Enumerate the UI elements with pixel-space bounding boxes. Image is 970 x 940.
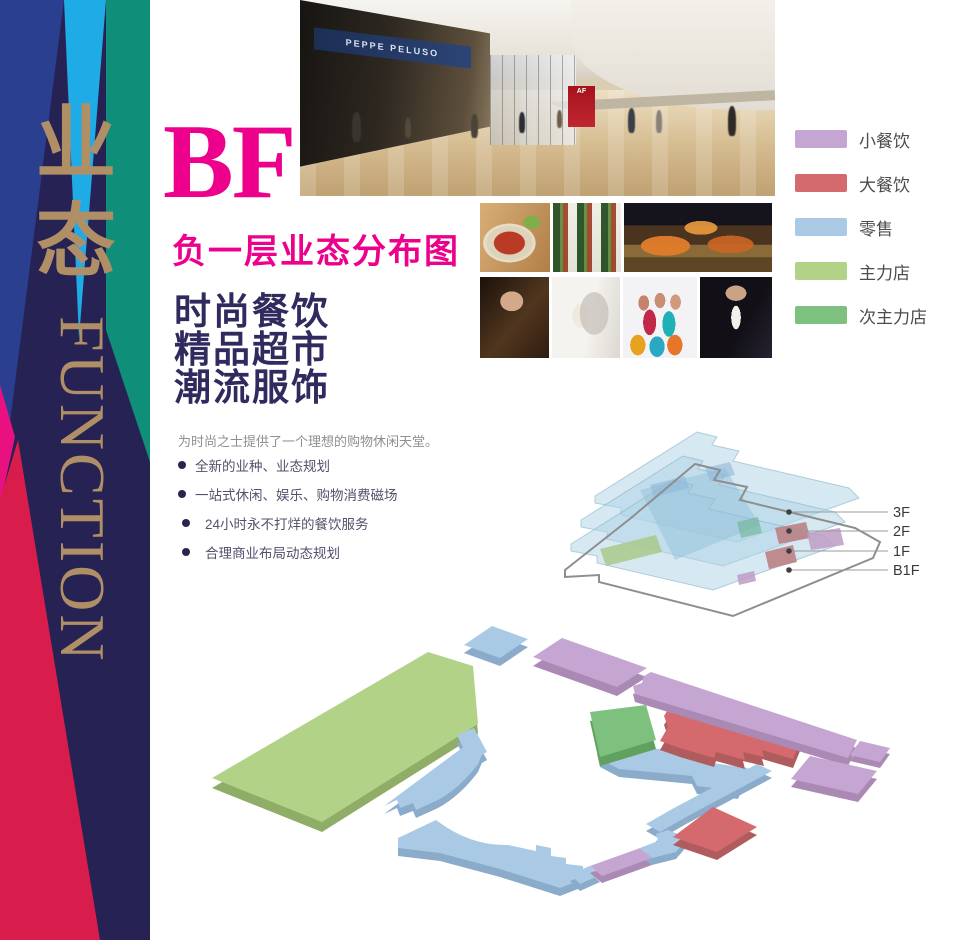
floor-code-title: BF [163, 112, 294, 212]
legend-swatch [795, 262, 847, 280]
headline-line-2: 精品超市 [174, 332, 330, 370]
legend-swatch [795, 218, 847, 236]
bullet-text: 全新的业种、业态规划 [195, 455, 330, 475]
floor-label-3f: 3F [893, 505, 910, 521]
floor-label-2f: 2F [893, 524, 910, 540]
person-silhouette [557, 110, 562, 128]
mall-interior-photo: PEPPE PELUSO AF [300, 0, 775, 196]
floor-label-1f: 1F [893, 544, 910, 560]
food-court-photo [624, 203, 772, 272]
legend-item: 小餐饮 [795, 130, 965, 148]
bullet-dot-icon [182, 519, 190, 527]
legend-item: 主力店 [795, 262, 965, 280]
person-silhouette [352, 112, 361, 142]
list-item: 24小时永不打烊的餐饮服务 [178, 513, 478, 533]
bullet-text: 24小时永不打烊的餐饮服务 [205, 513, 369, 533]
list-item: 合理商业布局动态规划 [178, 542, 478, 562]
person-silhouette [519, 112, 525, 133]
legend-label: 大餐饮 [859, 171, 910, 196]
bullet-dot-icon [178, 490, 186, 498]
legend-item: 次主力店 [795, 306, 965, 324]
photo-collage [480, 203, 772, 358]
brochure-page: 业态 FUNCTION BF 负一层业态分布图 时尚餐饮 精品超市 潮流服饰 为… [0, 0, 970, 940]
bullet-list: 全新的业种、业态规划 一站式休闲、娱乐、购物消费磁场 24小时永不打烊的餐饮服务… [178, 455, 478, 571]
person-silhouette [471, 114, 478, 138]
headline-block: 时尚餐饮 精品超市 潮流服饰 [174, 294, 330, 408]
bottles-photo [553, 203, 621, 272]
fur-portrait-photo [480, 277, 549, 358]
person-silhouette [405, 118, 411, 138]
legend-label: 小餐饮 [859, 127, 910, 152]
photo-glass-wall [490, 55, 576, 145]
person-silhouette [628, 108, 635, 133]
shoppers-photo [623, 277, 697, 358]
accent-storefront: AF [568, 86, 594, 127]
legend-swatch [795, 306, 847, 324]
bullet-dot-icon [182, 548, 190, 556]
banner-vertical-title-en: FUNCTION [45, 316, 119, 856]
banner-vertical-title-cn: 业态 [26, 96, 126, 292]
headline-line-1: 时尚餐饮 [174, 294, 330, 332]
bullet-dot-icon [178, 461, 186, 469]
legend-label: 主力店 [859, 259, 910, 284]
legend-swatch [795, 174, 847, 192]
suit-man-photo [700, 277, 772, 358]
page-title: 负一层业态分布图 [172, 224, 460, 273]
list-item: 全新的业种、业态规划 [178, 455, 478, 475]
legend-label: 零售 [859, 215, 893, 240]
legend-swatch [795, 130, 847, 148]
floor-label-b1f: B1F [893, 563, 920, 579]
list-item: 一站式休闲、娱乐、购物消费磁场 [178, 484, 478, 504]
fashion-photo [552, 277, 620, 358]
headline-line-3: 潮流服饰 [174, 370, 330, 408]
legend-label: 次主力店 [859, 303, 927, 328]
legend-item: 零售 [795, 218, 965, 236]
bullet-text: 合理商业布局动态规划 [205, 542, 340, 562]
intro-text: 为时尚之士提供了一个理想的购物休闲天堂。 [178, 431, 438, 450]
person-silhouette [656, 110, 662, 133]
food-dish-photo [480, 203, 550, 272]
bullet-text: 一站式休闲、娱乐、购物消费磁场 [195, 484, 398, 504]
person-silhouette [728, 106, 736, 136]
legend-item: 大餐饮 [795, 174, 965, 192]
category-legend: 小餐饮 大餐饮 零售 主力店 次主力店 [795, 130, 965, 350]
b1-floorplan-diagram [175, 612, 915, 940]
